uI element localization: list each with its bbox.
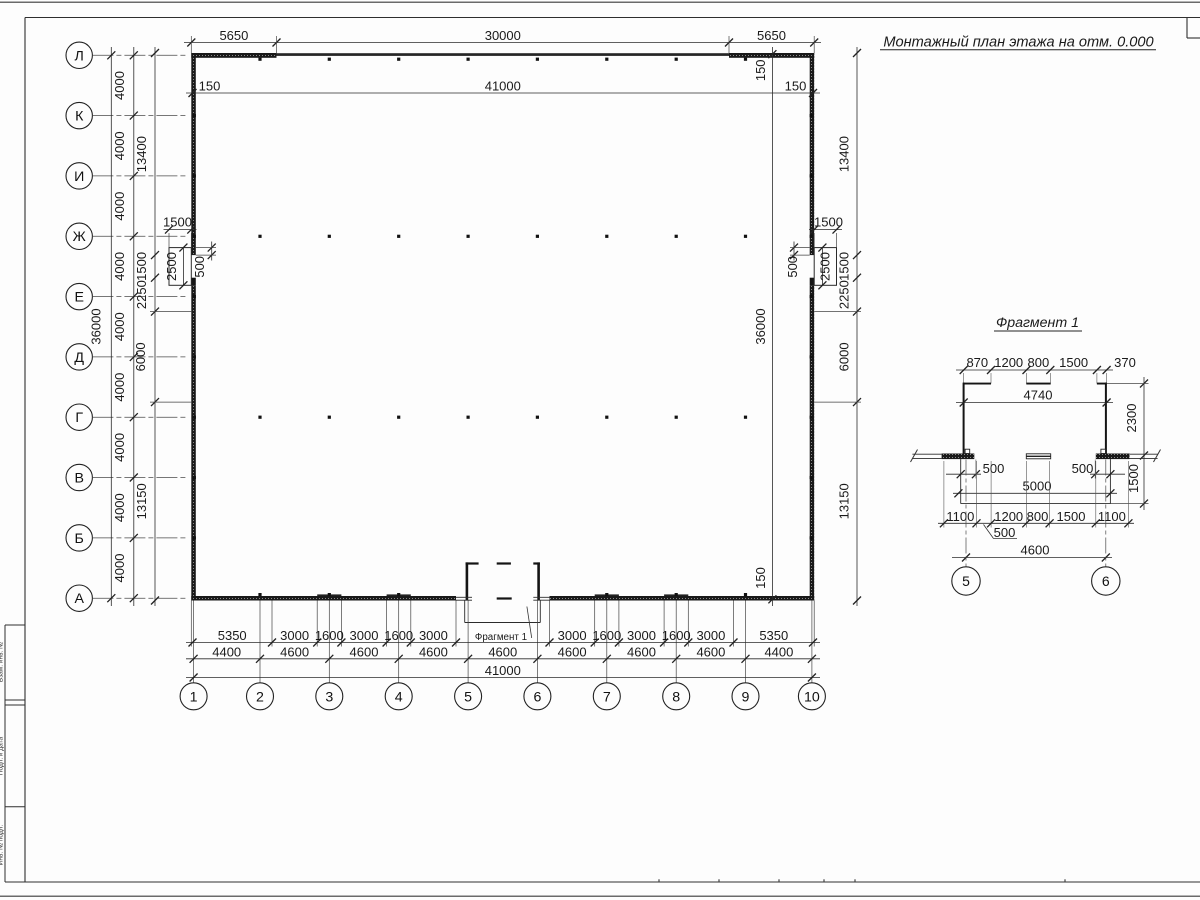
svg-text:Взам. инв. №: Взам. инв. № <box>0 642 5 682</box>
svg-text:2: 2 <box>256 689 264 705</box>
svg-text:370: 370 <box>1114 355 1136 370</box>
svg-text:1500: 1500 <box>836 252 851 281</box>
svg-text:1500: 1500 <box>814 215 843 230</box>
svg-text:500: 500 <box>785 256 800 278</box>
svg-text:1500: 1500 <box>163 215 192 230</box>
svg-text:4000: 4000 <box>112 312 127 341</box>
svg-text:4600: 4600 <box>558 644 587 659</box>
svg-text:4400: 4400 <box>764 644 793 659</box>
svg-text:4600: 4600 <box>1021 542 1050 557</box>
svg-text:3000: 3000 <box>558 628 587 643</box>
svg-text:3000: 3000 <box>280 628 309 643</box>
svg-text:1100: 1100 <box>1098 509 1126 524</box>
svg-text:1500: 1500 <box>134 252 149 281</box>
svg-text:5000: 5000 <box>1023 478 1052 493</box>
svg-text:13150: 13150 <box>134 483 149 519</box>
svg-text:6: 6 <box>533 689 541 705</box>
svg-text:4: 4 <box>395 689 403 705</box>
svg-text:5650: 5650 <box>757 28 786 43</box>
svg-text:4600: 4600 <box>696 644 725 659</box>
svg-text:3000: 3000 <box>627 628 656 643</box>
svg-text:30000: 30000 <box>485 28 521 43</box>
svg-text:800: 800 <box>1028 355 1050 370</box>
svg-text:150: 150 <box>785 79 807 94</box>
svg-text:6000: 6000 <box>836 342 851 371</box>
svg-text:Фрагмент 1: Фрагмент 1 <box>475 632 527 643</box>
svg-text:Подп. и дата: Подп. и дата <box>0 736 5 775</box>
svg-text:4000: 4000 <box>112 493 127 522</box>
svg-text:Е: Е <box>74 290 83 306</box>
svg-text:500: 500 <box>983 461 1005 476</box>
svg-text:В: В <box>74 471 83 487</box>
svg-text:13150: 13150 <box>836 483 851 519</box>
svg-text:6: 6 <box>1102 573 1110 589</box>
svg-text:Г: Г <box>75 410 83 426</box>
svg-text:2250: 2250 <box>134 280 149 309</box>
svg-text:4600: 4600 <box>488 644 517 659</box>
svg-text:Инв. № подл.: Инв. № подл. <box>0 825 5 866</box>
svg-text:1600: 1600 <box>592 628 621 643</box>
svg-text:41000: 41000 <box>485 79 521 94</box>
svg-text:500: 500 <box>1072 461 1094 476</box>
svg-text:Д: Д <box>74 350 84 366</box>
svg-text:2250: 2250 <box>836 280 851 309</box>
svg-text:3: 3 <box>325 689 333 705</box>
svg-text:2300: 2300 <box>1124 404 1139 433</box>
svg-text:3000: 3000 <box>696 628 725 643</box>
svg-text:500: 500 <box>192 256 207 278</box>
svg-text:7: 7 <box>603 689 611 705</box>
svg-text:4000: 4000 <box>112 71 127 100</box>
svg-text:4000: 4000 <box>112 373 127 402</box>
svg-text:4740: 4740 <box>1024 388 1053 403</box>
svg-text:2500: 2500 <box>818 252 833 281</box>
svg-text:4600: 4600 <box>280 644 309 659</box>
svg-text:10: 10 <box>804 689 820 705</box>
svg-text:Монтажный план этажа на отм. 0: Монтажный план этажа на отм. 0.000 <box>883 35 1153 51</box>
svg-text:5650: 5650 <box>219 28 248 43</box>
svg-text:Фрагмент 1: Фрагмент 1 <box>996 315 1079 331</box>
svg-text:5: 5 <box>962 573 970 589</box>
svg-text:13400: 13400 <box>836 136 851 172</box>
svg-text:2500: 2500 <box>164 252 179 281</box>
svg-text:8: 8 <box>672 689 680 705</box>
svg-text:1500: 1500 <box>1059 355 1088 370</box>
svg-text:9: 9 <box>742 689 750 705</box>
svg-text:870: 870 <box>966 355 988 370</box>
svg-text:4000: 4000 <box>112 192 127 221</box>
svg-text:41000: 41000 <box>485 663 521 678</box>
svg-text:5: 5 <box>464 689 472 705</box>
svg-text:4600: 4600 <box>419 644 448 659</box>
svg-text:К: К <box>75 109 84 125</box>
svg-text:4000: 4000 <box>112 131 127 160</box>
svg-text:500: 500 <box>994 525 1016 540</box>
svg-text:4600: 4600 <box>350 644 379 659</box>
svg-text:Ж: Ж <box>73 229 86 245</box>
svg-text:1200: 1200 <box>994 355 1023 370</box>
svg-text:И: И <box>74 169 84 185</box>
svg-text:А: А <box>74 591 84 607</box>
svg-text:36000: 36000 <box>753 308 768 344</box>
svg-text:4600: 4600 <box>627 644 656 659</box>
svg-text:1200: 1200 <box>994 509 1023 524</box>
svg-text:1600: 1600 <box>662 628 691 643</box>
svg-text:1500: 1500 <box>1057 509 1086 524</box>
svg-text:1600: 1600 <box>384 628 413 643</box>
svg-text:13400: 13400 <box>134 136 149 172</box>
svg-text:4400: 4400 <box>212 644 241 659</box>
svg-text:1100: 1100 <box>946 509 974 524</box>
svg-text:1: 1 <box>190 689 198 705</box>
svg-text:5350: 5350 <box>218 628 247 643</box>
svg-text:150: 150 <box>753 567 768 589</box>
svg-text:150: 150 <box>753 59 768 81</box>
svg-text:36000: 36000 <box>89 308 104 344</box>
svg-text:150: 150 <box>199 79 221 94</box>
svg-text:4000: 4000 <box>112 554 127 583</box>
svg-text:3000: 3000 <box>419 628 448 643</box>
svg-text:3000: 3000 <box>350 628 379 643</box>
svg-text:Б: Б <box>75 531 84 547</box>
svg-text:6000: 6000 <box>133 342 148 371</box>
svg-text:Л: Л <box>75 48 84 64</box>
svg-text:5350: 5350 <box>759 628 788 643</box>
svg-text:4000: 4000 <box>112 252 127 281</box>
svg-text:800: 800 <box>1027 509 1049 524</box>
svg-text:4000: 4000 <box>112 433 127 462</box>
svg-text:1600: 1600 <box>315 628 344 643</box>
